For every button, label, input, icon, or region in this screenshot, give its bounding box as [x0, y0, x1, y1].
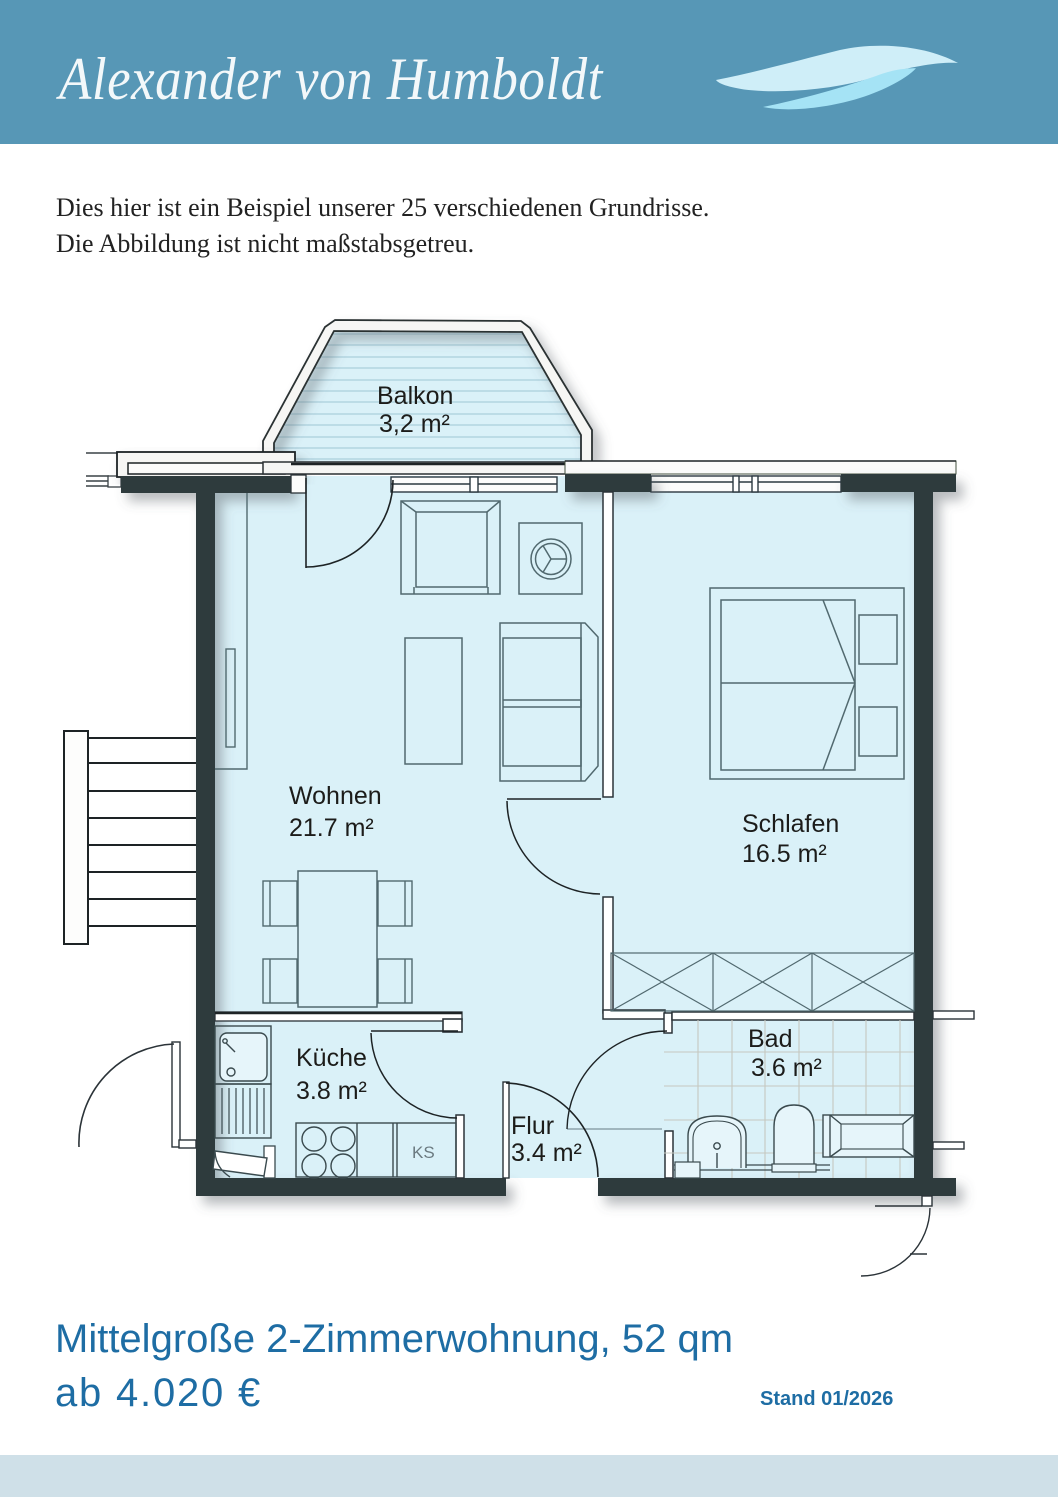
svg-text:3.8 m²: 3.8 m²: [296, 1077, 367, 1105]
svg-text:Küche: Küche: [296, 1044, 367, 1072]
svg-text:3.6 m²: 3.6 m²: [751, 1054, 822, 1082]
svg-text:Flur: Flur: [511, 1112, 554, 1140]
svg-text:21.7 m²: 21.7 m²: [289, 814, 374, 842]
svg-text:Bad: Bad: [748, 1025, 792, 1053]
svg-text:3,2 m²: 3,2 m²: [379, 410, 450, 438]
svg-text:16.5 m²: 16.5 m²: [742, 840, 827, 868]
svg-text:KS: KS: [412, 1143, 435, 1162]
svg-text:Schlafen: Schlafen: [742, 810, 839, 838]
svg-text:3.4 m²: 3.4 m²: [511, 1139, 582, 1167]
svg-text:Balkon: Balkon: [377, 382, 453, 410]
svg-text:Wohnen: Wohnen: [289, 782, 382, 810]
